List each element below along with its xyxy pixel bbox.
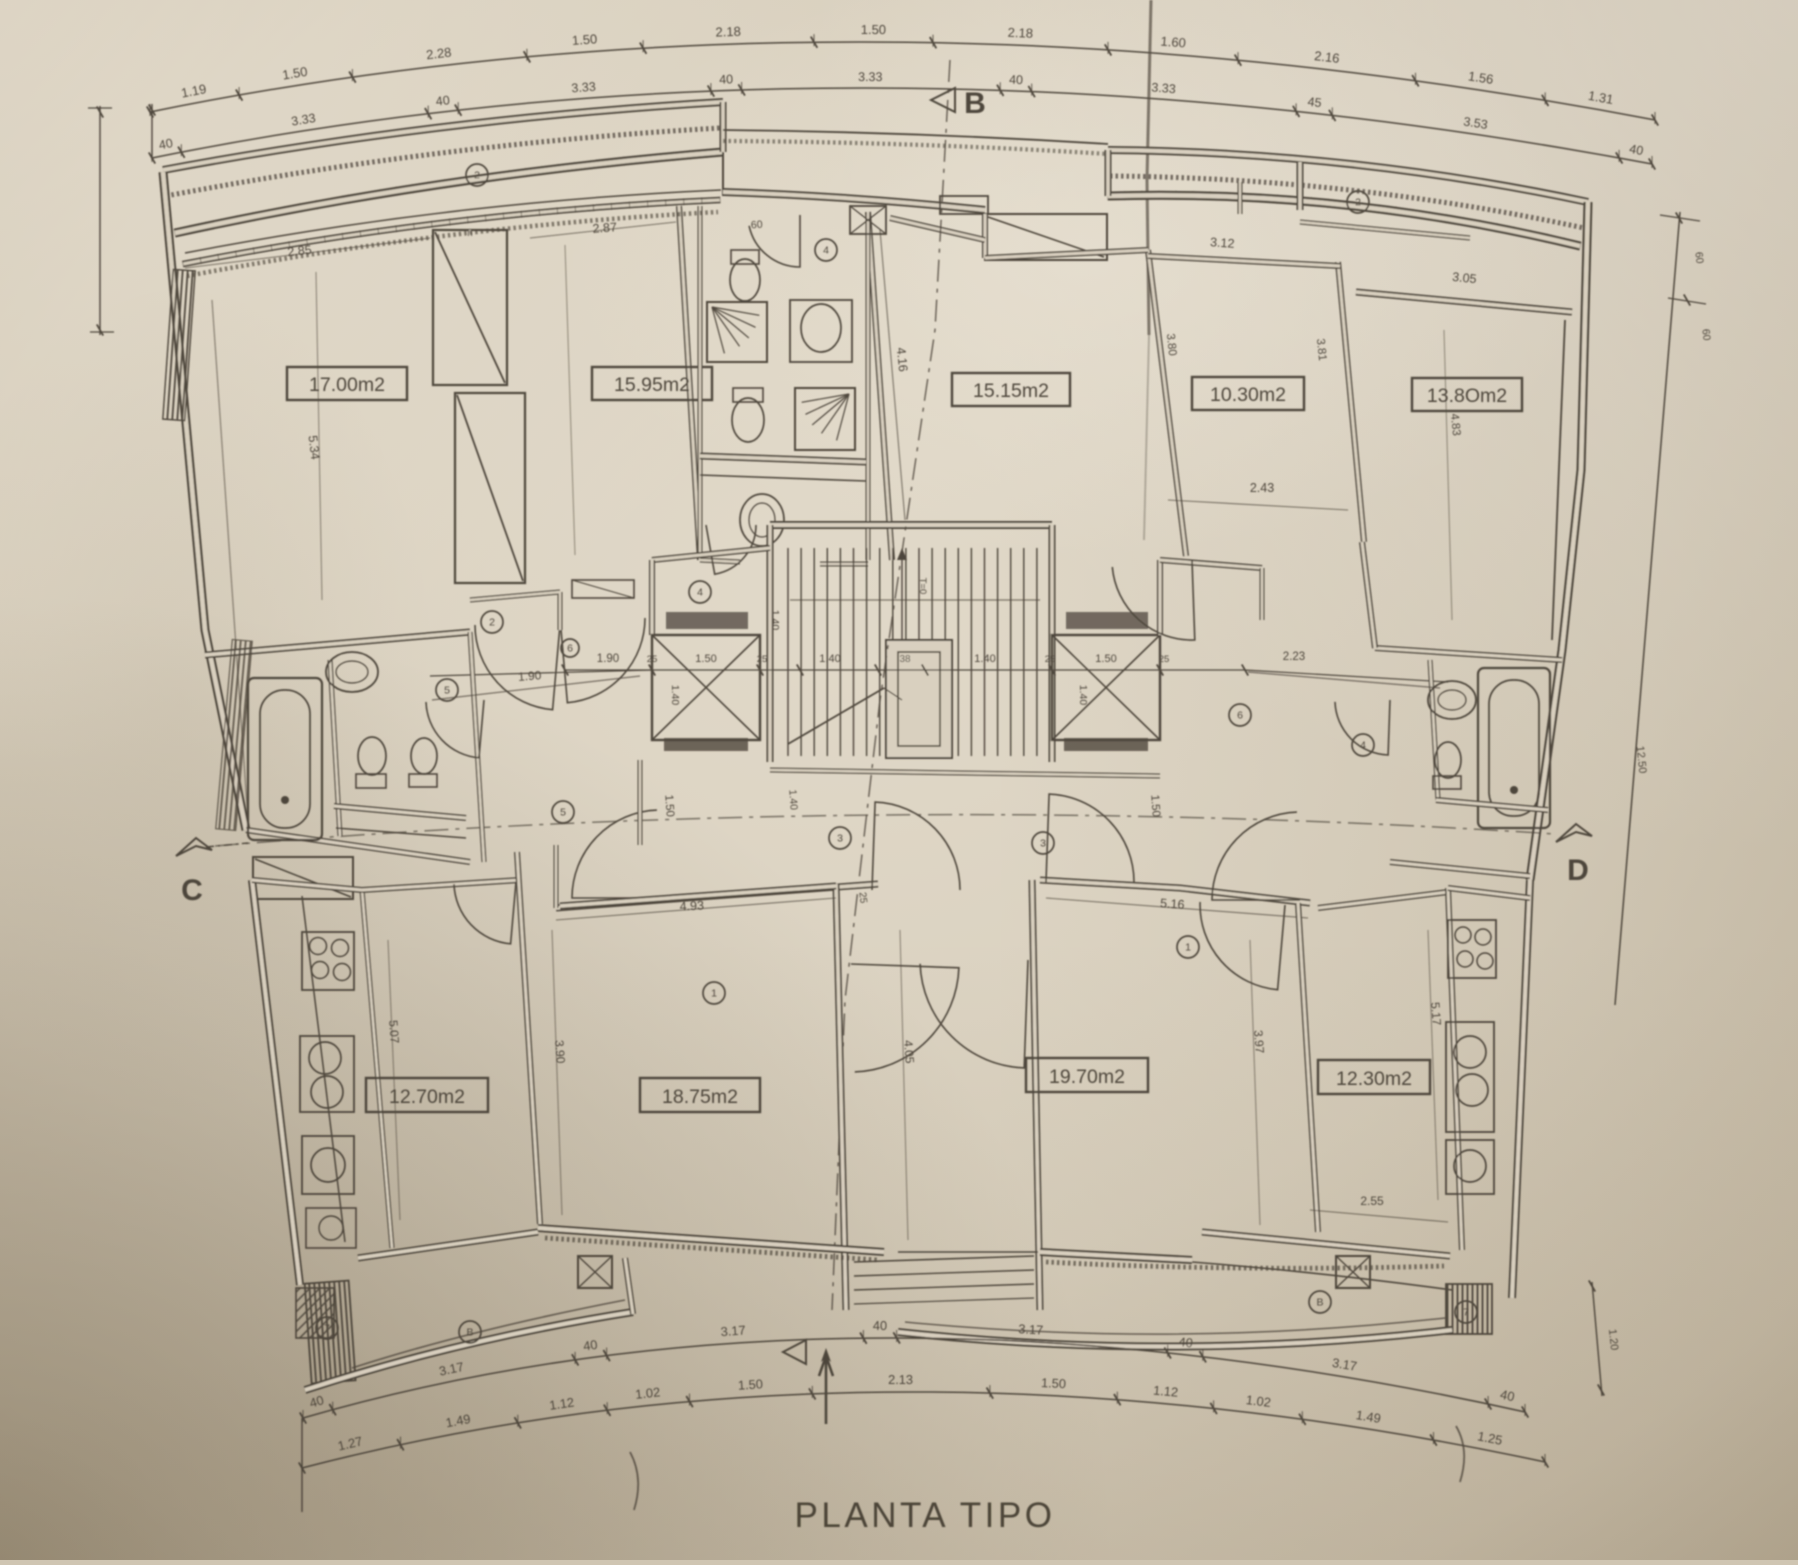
svg-text:40: 40	[873, 1318, 887, 1333]
svg-text:12.30m2: 12.30m2	[1336, 1068, 1412, 1090]
svg-text:40: 40	[719, 72, 733, 87]
svg-text:2: 2	[1355, 197, 1361, 209]
svg-text:3: 3	[1040, 838, 1046, 850]
svg-text:4.05: 4.05	[901, 1040, 917, 1065]
svg-text:3.12: 3.12	[1210, 235, 1235, 251]
svg-text:5: 5	[560, 807, 566, 819]
svg-text:25: 25	[856, 892, 868, 905]
svg-text:1.90: 1.90	[517, 668, 542, 684]
svg-text:1.50: 1.50	[1041, 1375, 1067, 1391]
svg-text:2: 2	[474, 170, 480, 182]
svg-text:40: 40	[1009, 73, 1023, 88]
svg-text:3: 3	[837, 833, 843, 845]
svg-text:1.40: 1.40	[819, 653, 840, 665]
svg-text:5.16: 5.16	[1160, 896, 1185, 912]
svg-text:6: 6	[1237, 710, 1243, 722]
svg-text:4.93: 4.93	[679, 898, 704, 913]
svg-text:D: D	[1567, 854, 1589, 887]
svg-text:3.90: 3.90	[552, 1040, 568, 1065]
svg-text:40: 40	[582, 1337, 598, 1354]
svg-text:4.16: 4.16	[894, 347, 910, 373]
svg-text:1.50: 1.50	[695, 653, 716, 665]
svg-text:40: 40	[158, 136, 174, 152]
svg-text:1.50: 1.50	[1095, 653, 1116, 665]
svg-text:1.02: 1.02	[1245, 1392, 1272, 1410]
svg-text:2.18: 2.18	[715, 24, 741, 40]
svg-text:15.15m2: 15.15m2	[973, 380, 1049, 402]
svg-text:1.50: 1.50	[738, 1376, 764, 1393]
svg-text:7: 7	[1463, 1307, 1469, 1319]
svg-text:C: C	[181, 874, 203, 907]
svg-text:3.17: 3.17	[1018, 1321, 1044, 1337]
svg-text:1.50: 1.50	[662, 794, 676, 817]
svg-text:B: B	[466, 1327, 473, 1339]
svg-text:6: 6	[567, 643, 573, 655]
svg-text:1.02: 1.02	[635, 1384, 661, 1402]
svg-text:1.50: 1.50	[1148, 794, 1162, 817]
svg-text:40: 40	[1178, 1334, 1194, 1350]
svg-text:T=0: T=0	[917, 578, 928, 595]
svg-text:15.95m2: 15.95m2	[614, 374, 690, 396]
svg-text:1.20: 1.20	[1606, 1328, 1620, 1351]
svg-text:5: 5	[444, 685, 450, 697]
svg-text:5.17: 5.17	[1428, 1002, 1444, 1027]
svg-text:B: B	[964, 87, 986, 120]
svg-text:3.33: 3.33	[858, 70, 882, 84]
svg-text:4: 4	[697, 587, 703, 599]
svg-text:40: 40	[1628, 142, 1644, 158]
svg-text:25: 25	[757, 654, 768, 665]
svg-text:PLANTA TIPO: PLANTA TIPO	[795, 1496, 1056, 1535]
svg-text:1.50: 1.50	[861, 22, 886, 37]
svg-text:2.23: 2.23	[1283, 651, 1305, 663]
svg-text:2.43: 2.43	[1250, 481, 1274, 495]
svg-text:5.34: 5.34	[306, 435, 323, 461]
svg-text:3.05: 3.05	[1452, 270, 1478, 286]
svg-text:19.70m2: 19.70m2	[1049, 1066, 1125, 1088]
svg-text:13.8Om2: 13.8Om2	[1427, 385, 1507, 407]
svg-text:3.97: 3.97	[1251, 1030, 1267, 1055]
svg-text:1.90: 1.90	[597, 653, 619, 665]
svg-text:2.28: 2.28	[425, 45, 452, 63]
svg-text:2.13: 2.13	[888, 1372, 913, 1387]
svg-text:1.40: 1.40	[974, 653, 995, 665]
svg-text:10.30m2: 10.30m2	[1210, 384, 1286, 406]
svg-text:12.70m2: 12.70m2	[389, 1086, 465, 1108]
svg-text:3.33: 3.33	[571, 80, 596, 96]
svg-text:2.16: 2.16	[1313, 48, 1340, 66]
svg-text:60: 60	[1692, 251, 1705, 264]
svg-text:1: 1	[1185, 942, 1191, 954]
svg-text:1.12: 1.12	[1153, 1383, 1179, 1400]
svg-text:2.18: 2.18	[1007, 25, 1033, 41]
svg-text:1.50: 1.50	[571, 31, 597, 48]
svg-text:3.80: 3.80	[1164, 333, 1178, 357]
svg-text:40: 40	[435, 93, 450, 109]
svg-text:1.40: 1.40	[1077, 685, 1089, 706]
svg-text:45: 45	[1307, 95, 1322, 110]
svg-text:5.07: 5.07	[386, 1020, 402, 1045]
svg-text:1.60: 1.60	[1160, 34, 1186, 51]
svg-text:25: 25	[1045, 654, 1056, 665]
svg-text:4.83: 4.83	[1448, 413, 1462, 437]
svg-text:60: 60	[751, 219, 764, 232]
svg-text:1.40: 1.40	[786, 789, 799, 810]
svg-text:3.17: 3.17	[720, 1322, 746, 1339]
svg-text:3.81: 3.81	[1314, 338, 1328, 362]
svg-text:1.40: 1.40	[769, 610, 781, 631]
svg-text:38: 38	[899, 654, 911, 665]
svg-text:25: 25	[1159, 654, 1170, 665]
svg-text:2: 2	[489, 617, 495, 629]
svg-text:4: 4	[823, 245, 829, 257]
svg-text:2.55: 2.55	[1360, 1194, 1384, 1208]
svg-text:1.40: 1.40	[669, 685, 681, 706]
svg-text:60: 60	[1699, 328, 1712, 341]
svg-text:17.00m2: 17.00m2	[309, 374, 385, 396]
svg-text:25: 25	[647, 654, 658, 665]
svg-text:B: B	[1316, 1297, 1323, 1309]
svg-text:1: 1	[711, 988, 717, 1000]
svg-text:3.33: 3.33	[1151, 80, 1176, 96]
svg-text:18.75m2: 18.75m2	[662, 1086, 738, 1108]
